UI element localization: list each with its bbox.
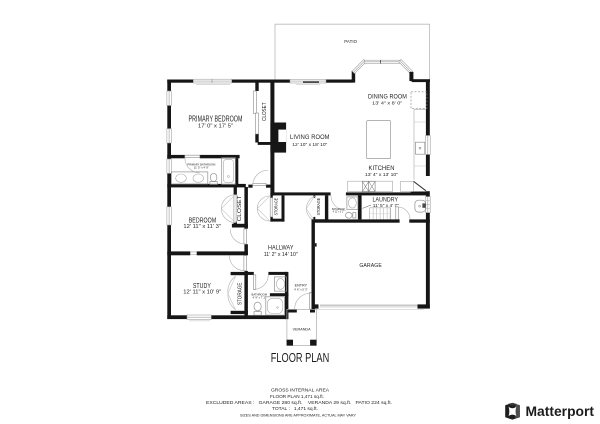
svg-text:STORAGE: STORAGE [273,198,278,216]
svg-text:STORAGE: STORAGE [316,198,321,216]
svg-text:SIZES AND DIMENSIONS ARE APPRO: SIZES AND DIMENSIONS ARE APPROXIMATE, AC… [240,414,357,418]
svg-text:4' 11" x 3' 1": 4' 11" x 3' 1" [333,211,344,214]
svg-text:11' 5" x 4' 7": 11' 5" x 4' 7" [373,203,399,209]
svg-text:Matterport: Matterport [526,404,595,419]
svg-text:4' 9" x 7' 2": 4' 9" x 7' 2" [253,295,267,299]
svg-text:VERANDA: VERANDA [293,327,312,331]
svg-text:DINING ROOM: DINING ROOM [368,94,407,100]
svg-text:FLOOR PLAN 1,471 sq.ft.: FLOOR PLAN 1,471 sq.ft. [270,394,324,400]
svg-text:BEDROOM: BEDROOM [189,215,217,224]
svg-text:17' 0" x 17' 5": 17' 0" x 17' 5" [198,124,233,130]
svg-text:11' 2" x 14' 10": 11' 2" x 14' 10" [264,252,298,258]
svg-text:STORAGE: STORAGE [238,282,244,305]
svg-text:13' 4" x 13' 10": 13' 4" x 13' 10" [365,172,398,178]
svg-text:13' 4" x 8' 0": 13' 4" x 8' 0" [372,100,402,106]
svg-text:GROSS INTERNAL AREA: GROSS INTERNAL AREA [271,388,330,394]
svg-text:LAUNDRY: LAUNDRY [373,196,399,203]
svg-text:12' 10" x 18' 10": 12' 10" x 18' 10" [292,142,327,148]
svg-text:CLOSET: CLOSET [262,102,268,121]
svg-text:KITCHEN: KITCHEN [369,166,395,172]
svg-text:HALLWAY: HALLWAY [268,245,294,252]
svg-text:11' 5" x 4' 9": 11' 5" x 4' 9" [194,166,209,170]
svg-text:12' 11" x 11' 3": 12' 11" x 11' 3" [183,224,221,230]
svg-text:PATIO: PATIO [344,39,357,45]
svg-text:LIVING ROOM: LIVING ROOM [290,135,330,141]
svg-text:CLOSET: CLOSET [237,195,243,222]
svg-text:GARAGE: GARAGE [359,263,382,269]
svg-text:TOTAL : 1,471 sq.ft.: TOTAL : 1,471 sq.ft. [272,406,318,412]
svg-text:4' 6" x 5' 3": 4' 6" x 5' 3" [294,287,308,291]
svg-text:PRIMARY BEDROOM: PRIMARY BEDROOM [189,115,243,124]
svg-text:FLOOR PLAN: FLOOR PLAN [271,350,330,365]
svg-text:EXCLUDED AREAS : GARAGE 280: EXCLUDED AREAS : GARAGE 280 sq.ft. VERAN… [206,400,392,406]
svg-text:12' 11" x 10' 9": 12' 11" x 10' 9" [183,290,221,296]
